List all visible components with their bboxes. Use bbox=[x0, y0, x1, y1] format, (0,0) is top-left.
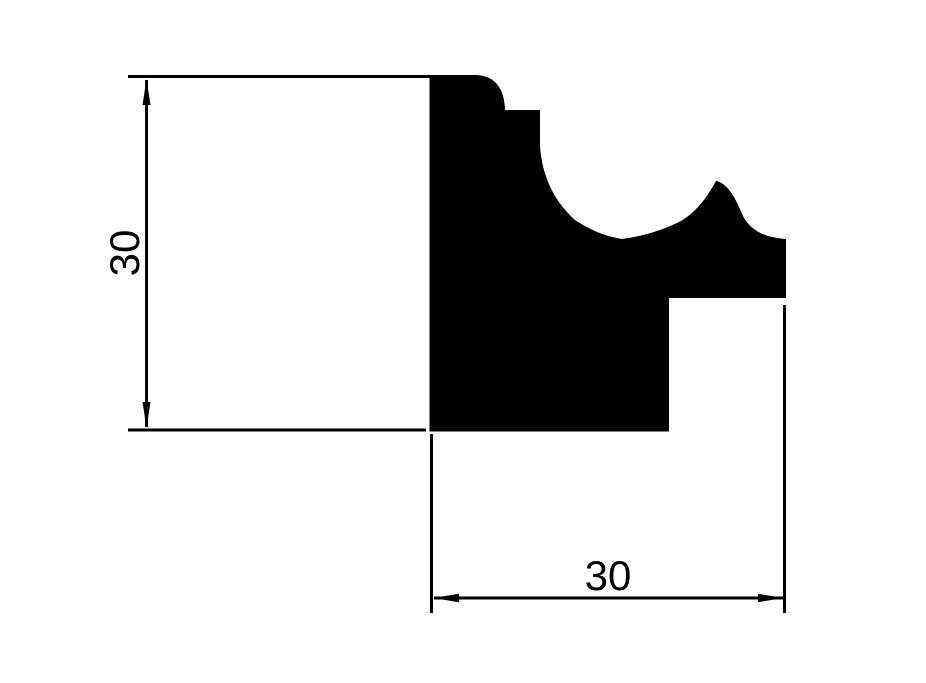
moulding-profile-silhouette bbox=[430, 75, 787, 432]
arrowhead-down-icon bbox=[143, 402, 151, 428]
vertical-dimension-label: 30 bbox=[101, 230, 148, 277]
moulding-profile bbox=[430, 75, 787, 432]
technical-drawing-page: 30 30 bbox=[0, 0, 926, 683]
vertical-dimension: 30 bbox=[101, 77, 430, 431]
arrowhead-up-icon bbox=[143, 79, 151, 105]
arrowhead-left-icon bbox=[433, 594, 459, 602]
arrowhead-right-icon bbox=[758, 594, 784, 602]
horizontal-dimension-label: 30 bbox=[585, 552, 632, 599]
technical-drawing-canvas: 30 30 bbox=[0, 0, 926, 683]
